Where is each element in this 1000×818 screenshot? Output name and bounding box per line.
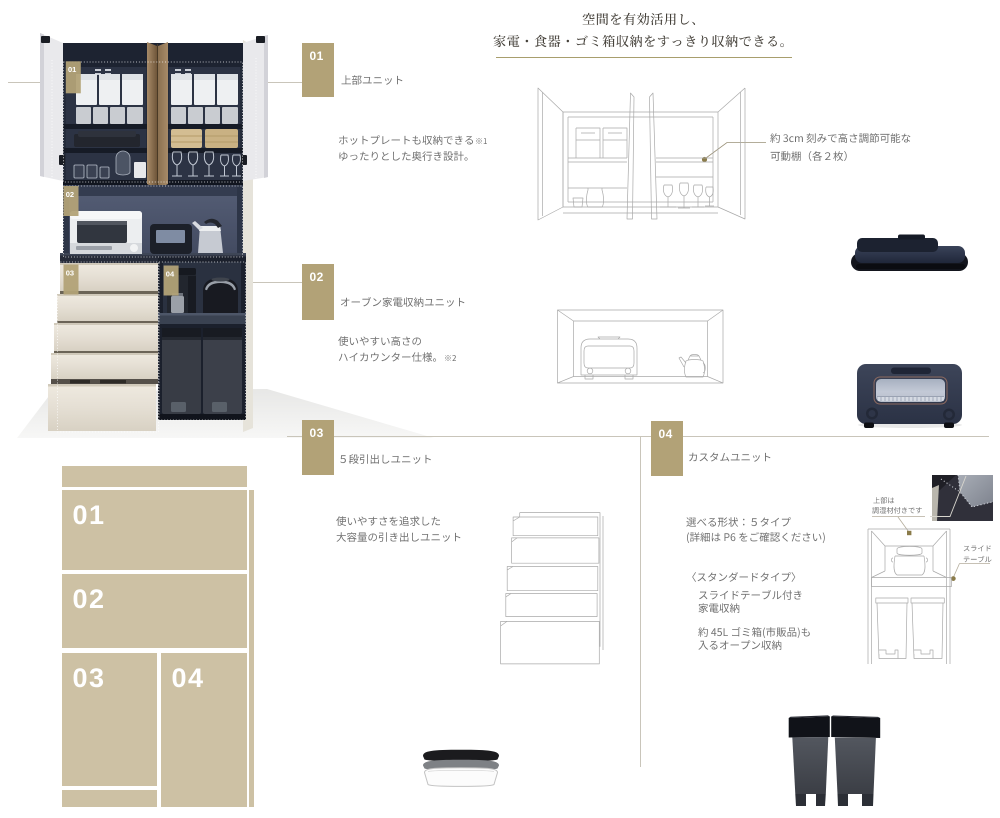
svg-text:04: 04 [166,270,175,279]
svg-text:02: 02 [66,190,74,199]
svg-text:03: 03 [66,269,74,278]
svg-text:01: 01 [68,65,76,74]
